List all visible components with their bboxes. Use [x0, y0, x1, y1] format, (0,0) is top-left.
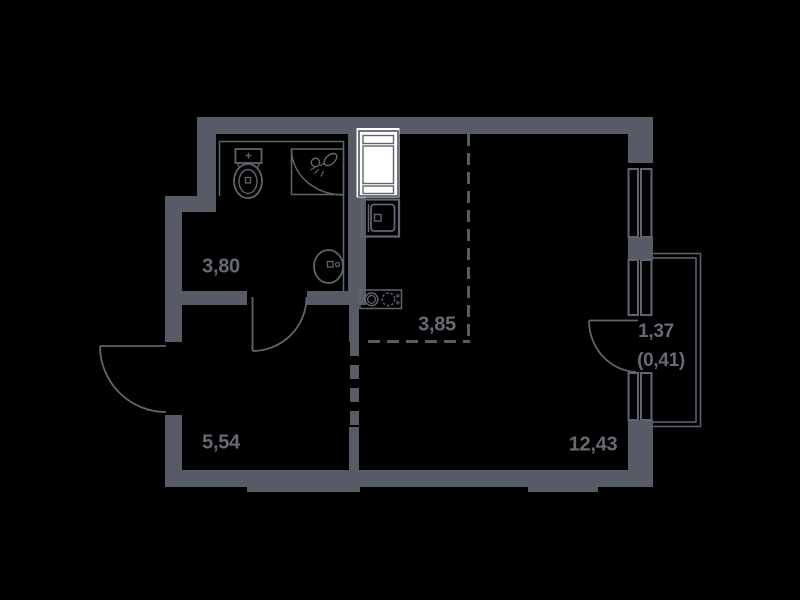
wall-hallway-lower — [349, 427, 359, 470]
wall-bottom-notch-1 — [247, 487, 360, 492]
wall-left-mid — [165, 212, 182, 342]
refrigerator-icon — [357, 128, 400, 198]
room-label-balcony-coefficient: (0,41) — [637, 350, 685, 372]
wall-left-lower — [165, 415, 182, 470]
room-label-kitchen: 3,85 — [418, 314, 456, 337]
toilet-icon — [234, 149, 262, 198]
room-label-bathroom: 3,80 — [202, 256, 240, 279]
window-icon — [629, 260, 652, 315]
kitchen-sink-icon — [362, 200, 399, 237]
wall-bathroom-bottom-left — [182, 291, 247, 305]
windows — [629, 169, 652, 420]
window-icon — [629, 169, 652, 237]
door-swing-icon — [589, 321, 636, 373]
shower-icon — [292, 149, 344, 195]
room-label-living-room: 12,43 — [569, 434, 618, 457]
wall-bathroom-bottom-right — [307, 291, 348, 305]
door-swing-icon — [100, 346, 166, 412]
wall-right-corner — [628, 117, 653, 163]
entrance-door — [100, 346, 166, 412]
bathroom-door — [253, 297, 307, 351]
balcony-door — [589, 321, 638, 373]
room-label-balcony: 1,37 — [638, 321, 674, 343]
stove-icon — [360, 290, 402, 309]
wall-top — [197, 117, 628, 134]
wall-bottom — [165, 470, 653, 487]
room-label-hallway: 5,54 — [202, 432, 240, 455]
floor-plan-drawing — [0, 0, 800, 600]
wall-left-jog — [165, 196, 216, 212]
window-icon — [629, 373, 652, 420]
wall-right-pier-1 — [628, 237, 653, 260]
washbasin-icon — [314, 250, 343, 283]
wall-hallway-upper — [349, 305, 359, 342]
wall-bottom-notch-2 — [528, 487, 598, 492]
wall-left-upper — [197, 117, 216, 196]
floor-plan: 3,80 3,85 5,54 12,43 1,37 (0,41) — [0, 0, 800, 600]
door-swing-icon — [253, 297, 307, 351]
